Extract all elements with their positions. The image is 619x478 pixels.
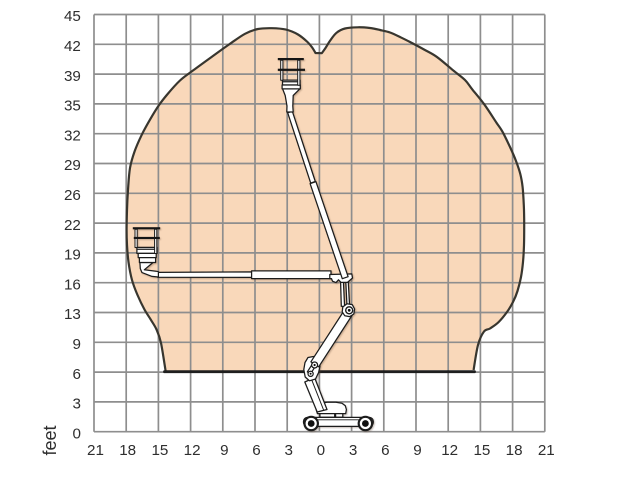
- svg-text:0: 0: [317, 442, 325, 459]
- svg-text:29: 29: [64, 157, 81, 174]
- svg-text:45: 45: [64, 8, 81, 25]
- svg-text:15: 15: [473, 442, 490, 459]
- svg-text:0: 0: [72, 425, 80, 442]
- svg-text:18: 18: [506, 442, 523, 459]
- svg-text:32: 32: [64, 127, 81, 144]
- svg-text:12: 12: [184, 442, 201, 459]
- svg-text:21: 21: [87, 442, 104, 459]
- svg-text:feet: feet: [40, 425, 60, 455]
- svg-text:9: 9: [220, 442, 228, 459]
- svg-text:9: 9: [413, 442, 421, 459]
- svg-text:19: 19: [64, 247, 81, 264]
- svg-text:15: 15: [151, 442, 168, 459]
- svg-text:22: 22: [64, 217, 81, 234]
- svg-text:6: 6: [72, 366, 80, 383]
- svg-text:6: 6: [252, 442, 260, 459]
- svg-text:3: 3: [72, 396, 80, 413]
- svg-text:3: 3: [349, 442, 357, 459]
- svg-text:3: 3: [284, 442, 292, 459]
- svg-text:35: 35: [64, 98, 81, 115]
- svg-text:6: 6: [381, 442, 389, 459]
- svg-text:12: 12: [441, 442, 458, 459]
- svg-text:42: 42: [64, 38, 81, 55]
- svg-text:39: 39: [64, 68, 81, 85]
- svg-text:18: 18: [119, 442, 136, 459]
- svg-text:21: 21: [538, 442, 555, 459]
- svg-text:26: 26: [64, 187, 81, 204]
- svg-text:9: 9: [72, 336, 80, 353]
- svg-text:13: 13: [64, 306, 81, 323]
- svg-text:16: 16: [64, 276, 81, 293]
